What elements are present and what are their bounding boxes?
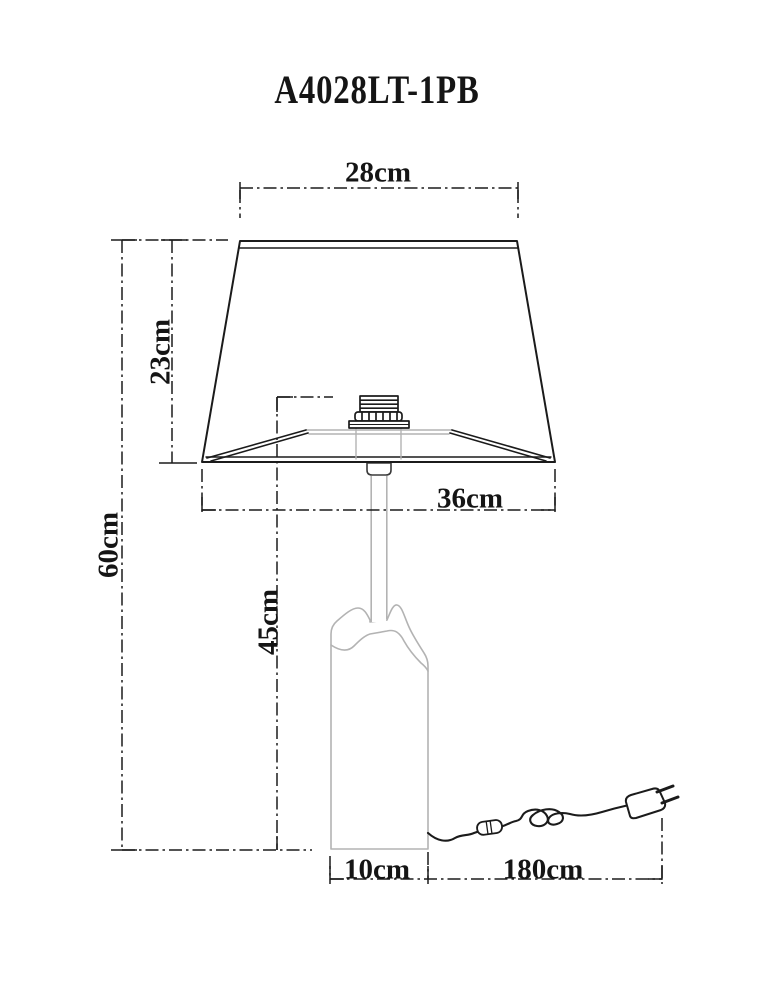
cord-length-label: 180cm bbox=[503, 856, 584, 885]
euro-plug bbox=[626, 786, 678, 818]
diagram-linework bbox=[0, 0, 758, 1000]
power-cord bbox=[428, 786, 678, 841]
shade-bottom-width-label: 36cm bbox=[437, 485, 503, 514]
base-width-label: 10cm bbox=[344, 856, 410, 885]
stand-height-label: 45cm bbox=[255, 589, 284, 655]
stem-collar bbox=[367, 463, 391, 475]
stem bbox=[371, 476, 387, 622]
total-height-label: 60cm bbox=[95, 512, 124, 578]
inline-switch bbox=[476, 819, 503, 835]
product-code: A4028LT-1PB bbox=[274, 70, 479, 110]
shade-top-width-label: 28cm bbox=[345, 159, 411, 188]
shade-height-label: 23cm bbox=[147, 319, 176, 385]
glass-base bbox=[331, 605, 428, 849]
lamp-dimension-diagram: A4028LT-1PB 28cm 23cm 60cm 45cm 36cm 10c… bbox=[0, 0, 758, 1000]
dim-stand-height bbox=[277, 397, 333, 850]
